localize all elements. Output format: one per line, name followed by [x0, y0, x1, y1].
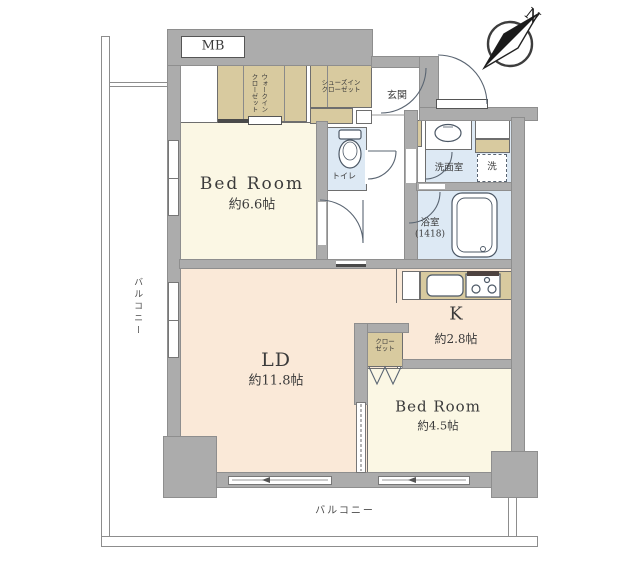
bathtub-icon — [452, 193, 497, 257]
toilet-icon — [339, 130, 361, 168]
bedroom-door-arc — [320, 200, 363, 243]
closet-label: クロー ゼット — [375, 339, 395, 354]
bedroom-second-name: Bed Room — [395, 398, 481, 415]
closet-bifold-door — [369, 367, 401, 384]
kitchen-sink-icon — [427, 275, 463, 296]
balcony-bottom-label: バルコニー — [315, 505, 375, 517]
shoes-closet-label: シューズイン クローゼット — [322, 80, 361, 95]
compass-icon: N — [474, 2, 552, 78]
entrance-label: 玄関 — [387, 90, 407, 102]
living-dining-name: LD — [261, 350, 291, 372]
bedroom-main-name: Bed Room — [200, 175, 304, 195]
fixtures-overlay — [0, 0, 640, 569]
walk-in-closet-label: ウォークイン クローゼット — [248, 74, 268, 113]
floor-plan: N MB Bed Room 約6.6帖 LD 約11.8帖 K 約2.8帖 Be… — [0, 0, 640, 569]
toilet-door-arc — [368, 151, 396, 179]
bedroom-main-area: 約6.6帖 — [229, 199, 276, 214]
sink-icon — [435, 125, 461, 142]
toilet-label: トイレ — [332, 171, 356, 180]
washing-machine-label: 洗 — [487, 163, 497, 174]
kitchen-name: K — [449, 305, 462, 326]
stove-icon — [466, 271, 500, 297]
bedroom-second-area: 約4.5帖 — [417, 419, 458, 432]
balcony-left-label: バルコニー — [132, 277, 142, 337]
bathroom-label: 浴室 (1418) — [415, 218, 445, 239]
living-dining-area: 約11.8帖 — [249, 375, 304, 390]
kitchen-area: 約2.8帖 — [434, 333, 477, 347]
meter-box-label: MB — [202, 40, 225, 55]
washroom-label: 洗面室 — [435, 164, 464, 175]
